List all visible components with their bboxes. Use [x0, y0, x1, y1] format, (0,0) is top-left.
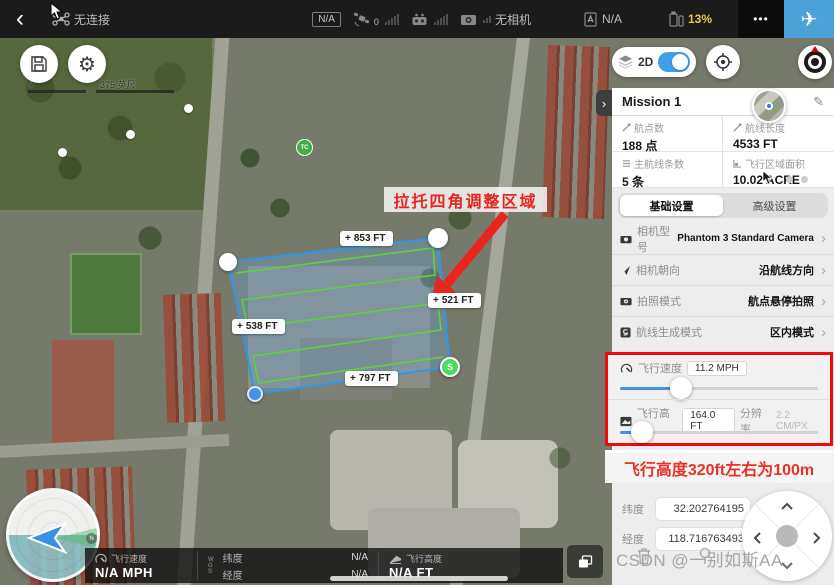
flight-mode-value: N/A — [602, 12, 622, 26]
heading-arrow-icon — [620, 265, 631, 276]
dpad-left-icon[interactable] — [752, 531, 762, 545]
capture-mode-icon — [620, 296, 632, 306]
route-mode-icon — [620, 327, 631, 338]
map-poi-marker[interactable]: TC — [296, 139, 313, 156]
save-icon — [30, 55, 48, 73]
flight-altitude-row: 飞行高度 164.0 FT 分辨率2.2 CM/PX — [608, 399, 830, 443]
map-2d-toggle[interactable]: 2D — [612, 47, 696, 77]
tab-basic-settings[interactable]: 基础设置 — [620, 195, 723, 216]
map-marker-dot[interactable] — [126, 130, 135, 139]
more-menu-button[interactable]: ••• — [738, 0, 784, 38]
stat-value: 4533 FT — [733, 137, 834, 151]
speed-label: 飞行速度 — [638, 360, 682, 376]
altitude-slider[interactable] — [620, 431, 818, 434]
edit-mission-icon[interactable]: ✎ — [813, 94, 824, 110]
edge-length-value: 521 FT — [442, 295, 474, 306]
wgs-label: WGS — [208, 557, 214, 575]
compass-ring-icon — [804, 51, 826, 73]
gear-icon: ⚙ — [78, 52, 96, 77]
back-icon: ‹ — [16, 7, 24, 31]
start-label: S — [447, 362, 453, 372]
edge-length-label: +797 FT — [345, 371, 398, 386]
chevron-right-icon: › — [602, 96, 606, 111]
stat-area: 飞行区域面积 10.02 ACRE — [723, 152, 834, 188]
plus-icon: + — [350, 373, 356, 384]
back-button[interactable]: ‹ — [0, 0, 40, 38]
rc-signal-bars-icon — [434, 14, 448, 25]
chevron-right-icon: › — [821, 293, 826, 310]
rc-signal — [411, 13, 448, 26]
telemetry-alt-label: 飞行高度 — [406, 552, 442, 565]
edge-length-label: +538 FT — [232, 319, 285, 334]
flight-speed-row: 飞行速度 11.2 MPH — [608, 355, 830, 399]
compass-north-label: N — [86, 533, 97, 544]
route-length-icon — [733, 123, 742, 132]
altitude-note-annotation: 飞行高度320ft左右为100m — [605, 450, 833, 483]
dpad-center-button[interactable] — [776, 525, 798, 547]
dpad-right-icon[interactable] — [812, 531, 822, 545]
stat-waypoints: 航点数 188 点 — [612, 116, 723, 152]
speed-slider-thumb[interactable] — [670, 377, 692, 399]
camera-signal-bars-icon — [483, 16, 491, 23]
watermark-text: CSDN @一别如斯AA — [616, 546, 783, 571]
map-marker-dot[interactable] — [184, 104, 193, 113]
poi-label: TC — [301, 145, 309, 151]
latitude-input[interactable]: 32.202764195 — [655, 497, 751, 521]
flight-mode[interactable]: N/A — [583, 11, 622, 27]
settings-tabs: 基础设置 高级设置 — [618, 193, 828, 218]
stats-page-dots[interactable] — [786, 176, 808, 183]
row-camera-heading[interactable]: 相机朝向 沿航线方向 › — [612, 254, 834, 285]
resolution-value: 2.2 CM/PX — [776, 410, 820, 432]
toggle-knob — [672, 54, 688, 70]
copy-mission-button[interactable] — [567, 545, 603, 578]
row-capture-mode[interactable]: 拍照模式 航点悬停拍照 › — [612, 285, 834, 316]
polygon-corner-handle-selected[interactable] — [247, 386, 263, 402]
crosshair-icon — [713, 52, 733, 72]
edge-length-value: 853 FT — [354, 233, 386, 244]
flight-mode-icon — [583, 11, 598, 27]
mission-start-handle[interactable]: S — [440, 357, 460, 377]
satellite-icon — [353, 12, 370, 27]
latitude-row: 纬度 32.202764195 — [622, 497, 751, 521]
edge-length-label: +853 FT — [340, 231, 393, 246]
altitude-slider-thumb[interactable] — [631, 421, 653, 443]
map-settings-button[interactable]: ⚙ — [68, 45, 106, 83]
ellipsis-icon: ••• — [753, 12, 769, 26]
tab-advanced-settings[interactable]: 高级设置 — [723, 195, 826, 216]
longitude-label: 经度 — [622, 531, 648, 547]
row-route-generation-mode[interactable]: 航线生成模式 区内模式 › — [612, 316, 834, 347]
tutorial-annotation: 拉托四角调整区域 — [384, 187, 547, 212]
battery-status[interactable]: 13% — [668, 11, 712, 27]
airplane-icon: ✈ — [801, 7, 818, 32]
row-camera-model[interactable]: 相机型号 Phantom 3 Standard Camera › — [612, 223, 834, 254]
location-dot-icon — [765, 102, 773, 110]
speed-value-box[interactable]: 11.2 MPH — [687, 361, 747, 376]
battery-percent: 13% — [688, 12, 712, 26]
telemetry-lat-label: 纬度 — [223, 550, 243, 565]
gps-signal: 0 — [353, 11, 399, 27]
remote-controller-icon — [411, 13, 428, 26]
plus-icon: + — [433, 295, 439, 306]
note-text: 飞行高度320ft左右为100m — [624, 456, 814, 480]
map-marker-dot[interactable] — [58, 148, 67, 157]
plus-icon: + — [237, 321, 243, 332]
orientation-compass-button[interactable] — [798, 45, 832, 79]
speed-icon — [620, 362, 633, 374]
plus-icon: + — [345, 233, 351, 244]
edge-length-value: 797 FT — [359, 373, 391, 384]
dpad-up-icon[interactable] — [780, 501, 794, 511]
map-mode-button[interactable] — [752, 89, 786, 123]
stat-value: 5 条 — [622, 173, 722, 190]
camera-icon — [620, 234, 632, 244]
top-status-bar: ‹ 无连接 N/A 0 无相机 — [0, 0, 834, 38]
altitude-icon — [620, 416, 632, 427]
locate-button[interactable] — [706, 45, 740, 79]
satellite-count: 0 — [374, 17, 379, 27]
mission-settings-panel: › Mission 1 ✎ 航点数 188 点 航线长度 4533 FT 主航线… — [612, 88, 834, 585]
home-indicator[interactable] — [330, 576, 508, 581]
flight-parameters-highlight-box: 飞行速度 11.2 MPH 飞行高度 164.0 FT 分辨率2.2 CM/PX — [605, 352, 833, 446]
battery-icon — [668, 11, 684, 27]
gps-mode-badge: N/A — [312, 12, 341, 27]
telemetry-lon-label: 经度 — [223, 567, 243, 582]
mouse-cursor — [762, 170, 773, 185]
mouse-cursor — [50, 2, 63, 20]
connection-status-label: 无连接 — [74, 11, 110, 28]
camera-status-label: 无相机 — [495, 11, 531, 28]
2d-toggle-switch[interactable] — [658, 52, 690, 72]
speed-icon — [95, 552, 107, 564]
lines-icon — [622, 159, 631, 168]
chevron-right-icon: › — [821, 262, 826, 279]
save-mission-button[interactable] — [20, 45, 58, 83]
stat-value: 10.02 ACRE — [733, 173, 834, 187]
annotation-text: 拉托四角调整区域 — [393, 188, 537, 212]
telemetry-speed-label: 飞行速度 — [111, 552, 147, 565]
edge-length-label: +521 FT — [428, 293, 481, 308]
chevron-right-icon: › — [821, 324, 826, 341]
mission-stats: 航点数 188 点 航线长度 4533 FT 主航线条数 5 条 飞行区域面积 … — [612, 116, 834, 188]
speed-slider[interactable] — [620, 387, 818, 390]
area-icon — [733, 159, 742, 168]
chevron-right-icon: › — [821, 230, 826, 247]
latitude-label: 纬度 — [622, 501, 648, 517]
gps-signal-bars-icon — [385, 14, 399, 25]
telemetry-lat-value: N/A — [351, 552, 368, 563]
telemetry-speed-value: N/A MPH — [95, 565, 187, 580]
2d-label: 2D — [638, 55, 653, 69]
layers-icon — [618, 54, 633, 70]
compass-north-needle-icon — [811, 46, 819, 52]
takeoff-button[interactable]: ✈ — [784, 0, 834, 38]
stat-mainlines: 主航线条数 5 条 — [612, 152, 723, 188]
mission-title: Mission 1 — [622, 94, 681, 109]
edge-length-value: 538 FT — [246, 321, 278, 332]
collapse-panel-button[interactable]: › — [596, 90, 612, 116]
mission-header: Mission 1 ✎ — [612, 88, 834, 116]
polygon-corner-handle[interactable] — [219, 253, 237, 271]
camera-icon — [460, 13, 477, 26]
waypoint-icon — [622, 123, 631, 132]
altitude-icon — [389, 553, 402, 564]
camera-status: 无相机 — [460, 11, 531, 28]
stat-route-length: 航线长度 4533 FT — [723, 116, 834, 152]
polygon-corner-handle[interactable] — [428, 228, 448, 248]
copy-icon — [577, 554, 594, 570]
